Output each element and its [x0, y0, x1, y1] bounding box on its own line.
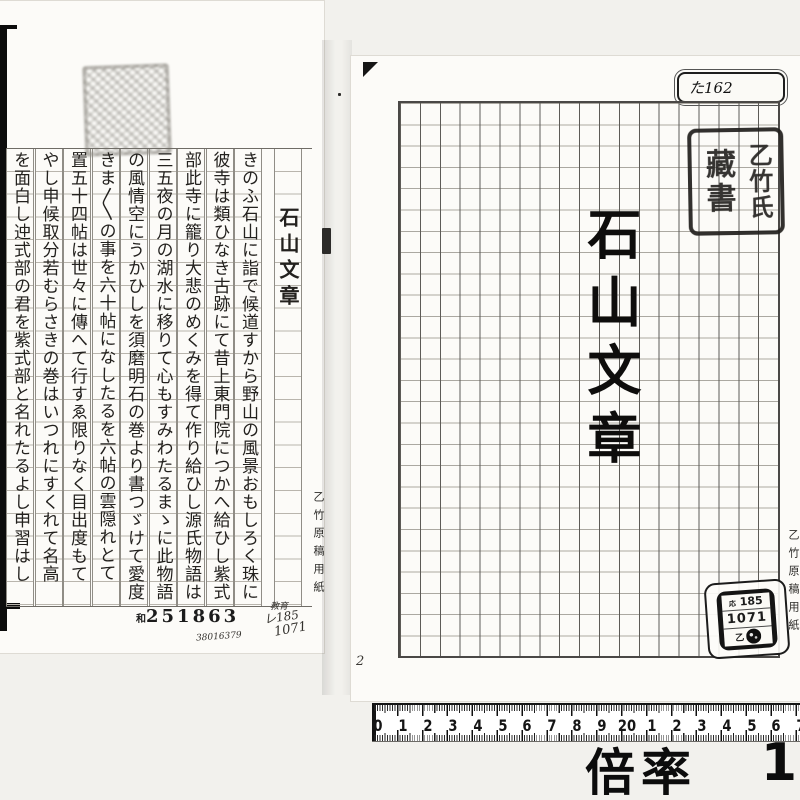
scanned-document: 石山文章 きのふ石山に詣で候道すから野山の風景おもしろく珠に彼寺は類ひなき古跡に…	[0, 0, 800, 800]
owner-seal-left-text: 藏書	[694, 134, 740, 230]
manuscript-column: の風情空にうかひしを須磨明石の巻より書つゞけて愛度	[120, 149, 148, 606]
shelf-tag: た162	[677, 72, 785, 103]
accession-number: 251863	[146, 606, 239, 627]
page-gutter	[322, 40, 352, 695]
catalog-label-frame: 応 185 1071 乙	[716, 588, 778, 651]
manuscript-column: を面白し迚式部の君を紫式部と名れたるよし申習はし	[6, 149, 34, 606]
calligraphy-title: 石山文章	[571, 206, 650, 516]
shelf-tag-label: た162	[679, 77, 733, 98]
manuscript-column-text: きま〱の事を六十帖になしたるを六帖の雲隠れとて	[93, 151, 119, 582]
right-margin-paper-brand: 乙竹原稿用紙	[785, 529, 800, 649]
left-page: 石山文章 きのふ石山に詣で候道すから野山の風景おもしろく珠に彼寺は類ひなき古跡に…	[0, 0, 325, 654]
title-column: 石山文章	[274, 149, 302, 606]
catalog-prefix: 応	[729, 599, 737, 607]
library-stamp-blurred	[82, 64, 171, 157]
manuscript-column-text: やし申候取分若むらさきの巻はいつれにすくれて名高	[36, 151, 62, 583]
catalog-number: 185	[739, 593, 763, 608]
magnification-label: 倍率	[585, 733, 697, 800]
magnification-value: 1	[761, 733, 797, 793]
manuscript-column-text: の風情空にうかひしを須磨明石の巻より書つゞけて愛度	[121, 151, 147, 601]
catalog-seal-char: 乙	[735, 630, 745, 644]
scan-speckle	[338, 93, 341, 96]
manuscript-column-text: を面白し迚式部の君を紫式部と名れたるよし申習はし	[7, 151, 33, 583]
manuscript-column: 置五十四帖は世々に傳へて行すゑ限りなく目出度もて	[63, 149, 91, 606]
manuscript-column-text: 置五十四帖は世々に傳へて行すゑ限りなく目出度もて	[64, 151, 90, 583]
ruler-major-ticks-top	[372, 705, 800, 716]
gutter-handwritten-note: 2	[356, 654, 364, 669]
manuscript-column: 三五夜の月の湖水に移りて心もすみわたるまゝに此物語	[149, 149, 177, 606]
owner-seal: 乙竹氏 藏書	[687, 127, 785, 236]
manuscript-column: 彼寺は類ひなき古跡にて昔上東門院につかへ給ひし紫式	[206, 149, 234, 606]
gutter-tab-mark	[322, 228, 331, 254]
catalog-seal-row: 乙	[724, 626, 773, 646]
manuscript-column: やし申候取分若むらさきの巻はいつれにすくれて名高	[35, 149, 63, 606]
manuscript-column-text: 三五夜の月の湖水に移りて心もすみわたるまゝに此物語	[150, 151, 176, 601]
owner-seal-right-text: 乙竹氏	[741, 133, 778, 229]
right-page: た162 乙竹氏 藏書 石山文章 応 185 1071 乙	[350, 55, 800, 702]
accession-stamp: 和251863	[136, 606, 239, 627]
manuscript-column: きのふ石山に詣で候道すから野山の風景おもしろく珠に	[234, 149, 262, 606]
corner-fold-mark	[363, 62, 378, 77]
catalog-round-seal-icon	[746, 628, 762, 644]
note-serial: 38016379	[196, 630, 242, 643]
left-grid: 石山文章 きのふ石山に詣で候道すから野山の風景おもしろく珠に彼寺は類ひなき古跡に…	[6, 148, 312, 607]
manuscript-column-text: きのふ石山に詣で候道すから野山の風景おもしろく珠に	[235, 151, 261, 601]
ruler-numbers: 0123456789201234567	[372, 716, 800, 731]
manuscript-column: きま〱の事を六十帖になしたるを六帖の雲隠れとて	[92, 149, 120, 606]
catalog-label: 応 185 1071 乙	[703, 578, 790, 660]
manuscript-column: 部此寺に籠り大悲のめくみを得て作り給ひし源氏物語は	[177, 149, 205, 606]
magnification-caption: 倍率 1	[585, 733, 797, 795]
manuscript-column-text: 彼寺は類ひなき古跡にて昔上東門院につかへ給ひし紫式	[207, 151, 233, 601]
scan-edge-mark	[0, 25, 17, 29]
manuscript-column-text: 部此寺に籠り大悲のめくみを得て作り給ひし源氏物語は	[178, 151, 204, 601]
left-page-title: 石山文章	[275, 151, 301, 311]
accession-prefix: 和	[136, 614, 146, 625]
